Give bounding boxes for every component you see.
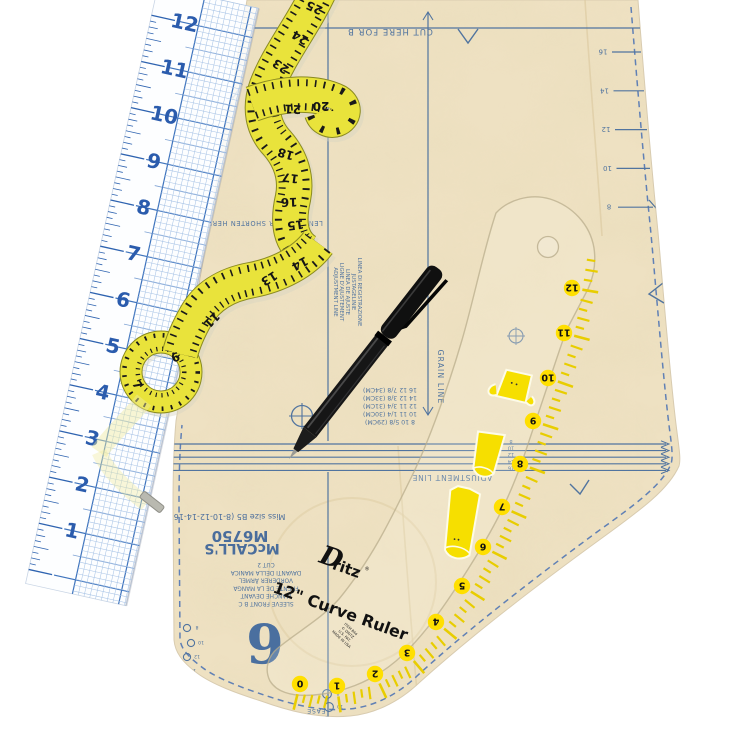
photo-canvas: CUT HERE FOR B LENGTHEN OR SHORTEN HERE … [0, 0, 750, 750]
tape-number: 16 [281, 195, 298, 210]
piece-label-line: DAVANTI DELLA MANICA [231, 569, 302, 575]
curve-number: 6 [479, 541, 486, 552]
tape-number: 17 [281, 170, 299, 186]
adjustment-multilingual-label: ADJUSTMENT LINE [332, 267, 338, 317]
curve-ruler-hole [538, 237, 559, 258]
size-line-label: Miss size B5 (8-10-12-14-16) [171, 512, 286, 521]
tape-number: 21 [284, 102, 301, 117]
curve-number: 2 [372, 668, 379, 679]
edge-size-number: 12 [602, 125, 611, 133]
edge-size-number: 8 [607, 203, 611, 211]
graded-dot-label: 10 [198, 639, 204, 645]
curve-number: 10 [541, 372, 555, 383]
graded-dot [179, 667, 186, 674]
curve-number: 12 [565, 282, 578, 293]
curve-number: 7 [499, 501, 506, 512]
cut-here-label: CUT HERE FOR B [347, 26, 433, 36]
edge-size-number: 16 [598, 48, 607, 56]
adjustment-multilingual-label: JUSTAGELINIE [350, 273, 356, 311]
size-chart-row: 12 11 3/4 (31CM) [363, 402, 417, 409]
curve-tick [361, 689, 362, 697]
sewing-tools-scene: CUT HERE FOR B LENGTHEN OR SHORTEN HERE … [0, 0, 750, 750]
curve-number: 1 [334, 680, 341, 691]
tape-number: 20 [313, 99, 330, 113]
ease-label: EASE [306, 707, 325, 714]
adjustment-multilingual-label: LIGNE D'AJUSTEMENT [338, 263, 344, 322]
edge-size-number: 10 [603, 164, 612, 172]
curve-tick [346, 694, 347, 702]
company-label: McCALL'S [204, 540, 280, 556]
curve-number: 3 [404, 647, 411, 658]
graded-dot-label: 12 [194, 653, 200, 659]
curve-tick [587, 260, 595, 261]
graded-dot-label: 12 [335, 717, 341, 723]
size-chart-row: 14 12 3/8 (33CM) [363, 394, 417, 401]
curve-tick [584, 280, 592, 281]
curve-number: 5 [459, 580, 466, 591]
size-chart-row: 8 10 5/8 (29CM) [365, 418, 415, 425]
curve-number: 0 [296, 678, 303, 689]
piece-label-line: CUT 2 [257, 561, 275, 567]
curve-number: 9 [530, 415, 537, 426]
adjustment-multilingual-label: LINEA DI REGISTRAZIONE [356, 258, 362, 327]
curve-number: 8 [516, 458, 523, 469]
edge-size-number: 14 [600, 86, 609, 94]
tape-number: 15 [286, 217, 304, 233]
size-chart-row: 10 11 1/4 (30CM) [363, 410, 417, 417]
curve-number: 4 [432, 616, 439, 627]
curve-number: 11 [557, 327, 570, 338]
size-chart-row: 16 12 7/8 (34CM) [363, 386, 417, 393]
adjustment-multilingual-label: LINEA DE AJUSTE [344, 269, 350, 316]
graded-dot-label: 8 [195, 624, 198, 630]
graded-dot [323, 717, 332, 726]
